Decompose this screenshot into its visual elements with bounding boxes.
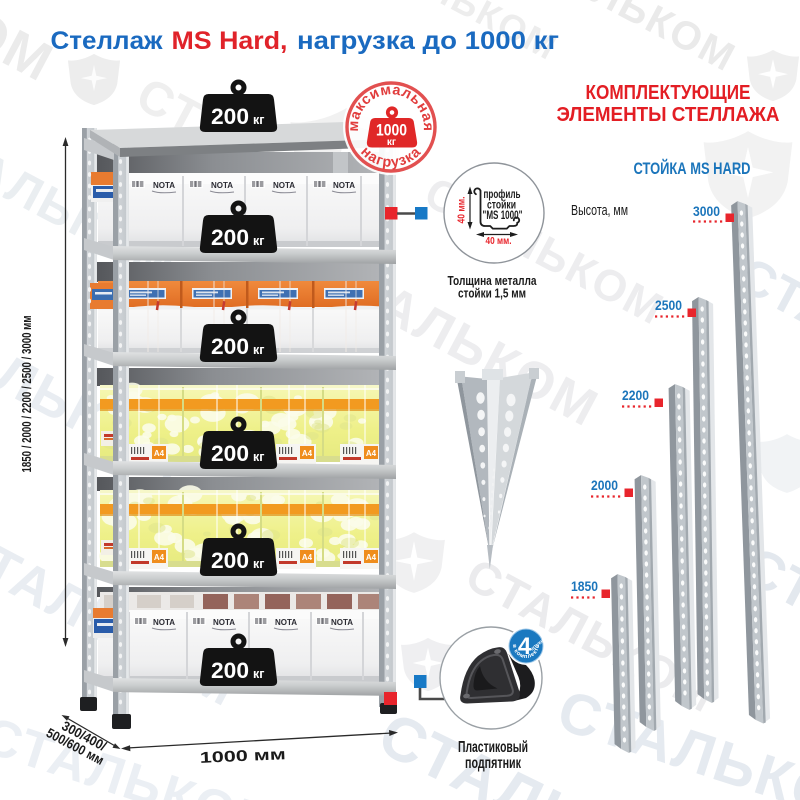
svg-text:кг: кг xyxy=(253,113,264,127)
svg-text:нагрузка до 1000 кг: нагрузка до 1000 кг xyxy=(297,27,559,55)
svg-text:40 мм.: 40 мм. xyxy=(486,235,512,247)
svg-text:200: 200 xyxy=(211,658,249,683)
svg-text:NOTA: NOTA xyxy=(333,181,355,190)
svg-text:200: 200 xyxy=(211,441,249,466)
svg-text:NOTA: NOTA xyxy=(211,181,233,190)
svg-text:A4: A4 xyxy=(302,449,313,458)
svg-text:200: 200 xyxy=(211,104,249,129)
svg-text:кг: кг xyxy=(253,234,264,248)
svg-text:Высота, мм: Высота, мм xyxy=(571,203,628,219)
svg-text:Пластиковый: Пластиковый xyxy=(458,739,528,756)
svg-text:"MS 1000": "MS 1000" xyxy=(483,210,523,222)
svg-text:MS Hard,: MS Hard, xyxy=(172,27,288,55)
svg-text:стойки 1,5 мм: стойки 1,5 мм xyxy=(458,286,526,301)
svg-text:200: 200 xyxy=(211,548,249,573)
svg-text:кг: кг xyxy=(253,557,264,571)
svg-text:кг: кг xyxy=(387,137,396,148)
svg-text:2200: 2200 xyxy=(622,387,649,403)
svg-text:кг: кг xyxy=(253,450,264,464)
svg-text:NOTA: NOTA xyxy=(273,181,295,190)
svg-text:2500: 2500 xyxy=(655,297,682,313)
svg-text:подпятник: подпятник xyxy=(465,755,521,772)
svg-text:A4: A4 xyxy=(366,449,377,458)
svg-text:40 мм.: 40 мм. xyxy=(456,196,468,223)
svg-text:Стеллаж: Стеллаж xyxy=(51,27,163,55)
svg-text:200: 200 xyxy=(211,334,249,359)
svg-text:кг: кг xyxy=(253,667,264,681)
svg-text:NOTA: NOTA xyxy=(153,181,175,190)
svg-text:1000 мм: 1000 мм xyxy=(199,746,286,767)
svg-text:NOTA: NOTA xyxy=(275,618,297,627)
svg-text:кг: кг xyxy=(253,343,264,357)
svg-text:A4: A4 xyxy=(154,553,165,562)
svg-text:A4: A4 xyxy=(366,553,377,562)
svg-text:A4: A4 xyxy=(302,553,313,562)
svg-text:NOTA: NOTA xyxy=(213,618,235,627)
svg-text:3000: 3000 xyxy=(693,203,720,219)
svg-text:NOTA: NOTA xyxy=(331,618,353,627)
svg-text:КОМПЛЕКТУЮЩИЕ: КОМПЛЕКТУЮЩИЕ xyxy=(586,81,751,104)
svg-text:NOTA: NOTA xyxy=(153,618,175,627)
svg-text:1850 / 2000 / 2200 / 2500 / 30: 1850 / 2000 / 2200 / 2500 / 3000 мм xyxy=(20,316,34,473)
svg-text:ЭЛЕМЕНТЫ СТЕЛЛАЖА: ЭЛЕМЕНТЫ СТЕЛЛАЖА xyxy=(557,103,780,126)
svg-text:1850: 1850 xyxy=(571,578,598,594)
svg-text:A4: A4 xyxy=(154,449,165,458)
svg-text:2000: 2000 xyxy=(591,477,618,493)
svg-text:200: 200 xyxy=(211,225,249,250)
svg-text:СТОЙКА MS HARD: СТОЙКА MS HARD xyxy=(634,159,751,178)
